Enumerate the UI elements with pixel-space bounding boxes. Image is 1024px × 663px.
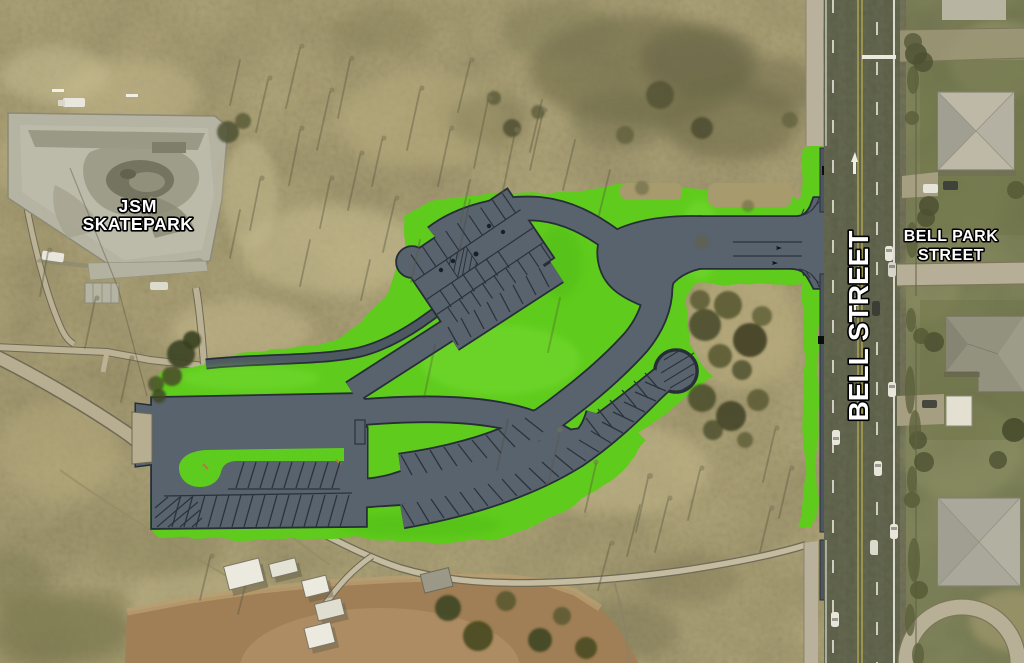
svg-text:SKATEPARK: SKATEPARK — [83, 214, 194, 234]
svg-text:BELL STREET: BELL STREET — [843, 231, 874, 422]
svg-text:STREET: STREET — [918, 247, 984, 264]
svg-text:BELL PARK: BELL PARK — [904, 228, 999, 245]
svg-text:JSM: JSM — [119, 196, 158, 216]
